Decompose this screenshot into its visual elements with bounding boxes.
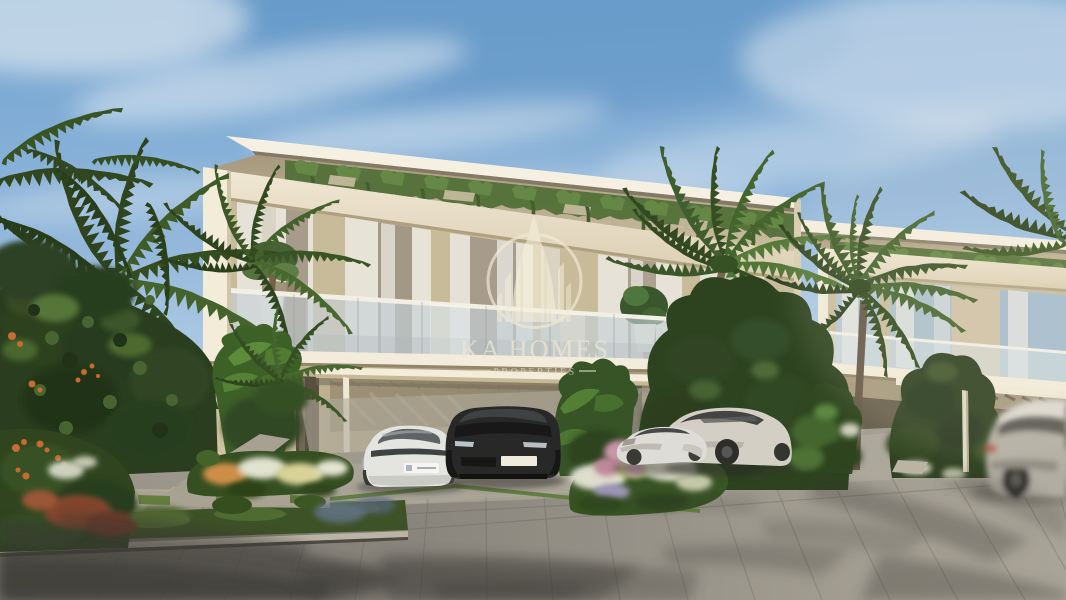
svg-text:KA HOMES: KA HOMES: [460, 335, 610, 364]
svg-text:PROPERTIES: PROPERTIES: [493, 367, 576, 378]
